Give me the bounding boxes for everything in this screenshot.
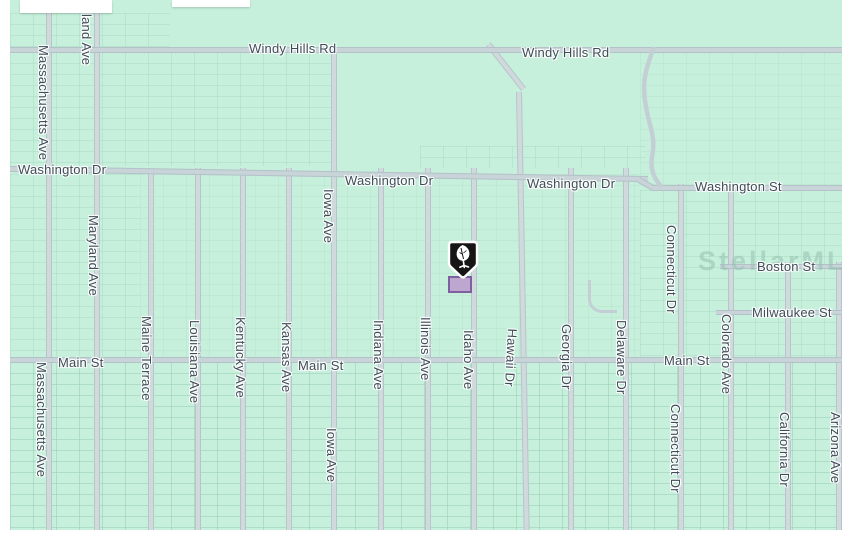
- road-kentucky-ave: [240, 168, 246, 530]
- road-washington-st: [652, 185, 842, 191]
- property-pin: [447, 239, 479, 281]
- white-patch-1: [20, 0, 112, 13]
- road-georgia-dr: [568, 168, 574, 530]
- street-label-connecticut-dr-top: Connecticut Dr: [664, 225, 679, 314]
- road-main-st: [10, 357, 842, 363]
- road-illinois-ave: [425, 168, 431, 530]
- parcel-grid-east: [640, 190, 842, 357]
- road-milwaukee-st: [716, 310, 842, 315]
- parcel-grid-center-east: [473, 174, 640, 357]
- map-screenshot: { "map": { "watermark": "StellarMLS", "c…: [0, 0, 844, 536]
- map-marker[interactable]: [447, 239, 479, 281]
- map-canvas[interactable]: StellarMLS Windy Hills Rd Windy Hills Rd…: [10, 0, 842, 530]
- road-hawaii-dr: [516, 92, 530, 530]
- parcel-grid-strip: [420, 146, 646, 168]
- road-maine-terrace: [148, 168, 154, 530]
- road-california-dr: [785, 262, 791, 530]
- road-idaho-ave: [471, 168, 477, 530]
- road-washington-dr: [10, 166, 648, 182]
- road-delaware-dr: [623, 168, 629, 530]
- road-cul-de-sac: [588, 280, 617, 313]
- road-massachusetts-ave: [46, 13, 52, 530]
- parcel-grid-west: [10, 174, 140, 357]
- road-windy-hills-rd: [10, 47, 842, 53]
- street-label-maryland-ave-fragment: land Ave: [79, 14, 94, 65]
- road-louisiana-ave: [195, 168, 201, 530]
- white-patch-2: [172, 0, 250, 7]
- parcel-grid-northwest: [10, 52, 333, 166]
- road-iowa-ave: [331, 47, 337, 530]
- road-wavy-connector: [630, 45, 674, 191]
- mls-watermark: StellarMLS: [698, 246, 842, 277]
- road-arizona-ave: [836, 262, 842, 530]
- road-boston-st: [720, 264, 842, 269]
- road-maryland-ave: [94, 13, 100, 530]
- road-indiana-ave: [378, 168, 384, 530]
- parcel-grid-top-left: [10, 13, 170, 47]
- road-kansas-ave: [286, 168, 292, 530]
